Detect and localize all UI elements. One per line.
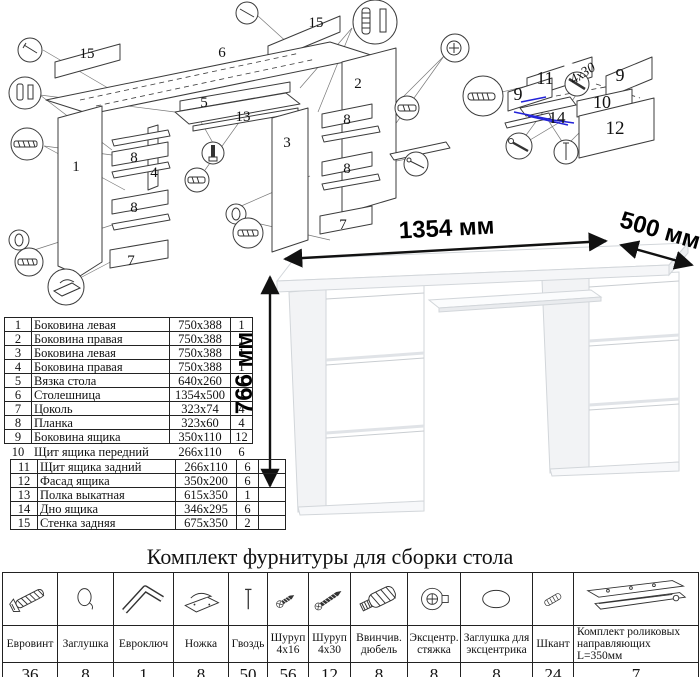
part-qty: 6: [237, 474, 259, 488]
part-number-label: 14: [549, 108, 567, 127]
part-number: 8: [5, 416, 32, 430]
part-name: Планка: [32, 416, 170, 430]
parts-table-row: 9Боковина ящика350x11012: [5, 430, 253, 444]
part-qty: 4: [231, 416, 253, 430]
part-name: Боковина правая: [32, 360, 170, 374]
part-number-label: 12: [606, 118, 625, 139]
parts-table-row: 11Щит ящика задний266x1106: [11, 460, 286, 474]
part-name: Столешница: [32, 388, 170, 402]
part-size: 346x295: [176, 502, 237, 516]
part-number: 11: [11, 460, 38, 474]
cam-cap-icon: [461, 573, 533, 626]
part-qty: 4: [231, 402, 253, 416]
eccentric-callout: [441, 34, 469, 62]
part-size: 266x110: [170, 445, 231, 459]
hardware-item-name: Ввинчив. дюбель: [351, 626, 408, 663]
part-qty: 1: [231, 318, 253, 332]
hardware-item-name: Эксцентр. стяжка: [408, 626, 461, 663]
hexkey-icon: [114, 573, 174, 626]
part-number: 3: [5, 346, 32, 360]
parts-table-row: 14Дно ящика346x2956: [11, 502, 286, 516]
part-number: 14: [11, 502, 38, 516]
part-name: Боковина левая: [32, 318, 170, 332]
part-number-label: 13: [236, 109, 251, 125]
cam-icon: [408, 573, 461, 626]
hardware-item-name: Ножка: [174, 626, 229, 663]
euroscrew-icon: [3, 573, 58, 626]
part-name: Щит ящика передний: [32, 445, 170, 459]
screw-callout: [404, 152, 428, 176]
part-number-label: 2: [354, 76, 362, 92]
part-number-label: 8: [343, 161, 351, 177]
part-number-label: 8: [130, 150, 138, 166]
part-qty: 12: [231, 430, 253, 444]
hardware-kit: ЕвровинтЗаглушкаЕвроключНожкаГвоздьШуруп…: [2, 572, 699, 677]
parts-table-row10: 10Щит ящика передний266x1106: [4, 444, 253, 459]
parts-table-row: 4Боковина правая750x3881: [5, 360, 253, 374]
parts-table-row: 15Стенка задняя675x3502: [11, 516, 286, 530]
hardware-kit-title: Комплект фурнитуры для сборки стола: [0, 544, 660, 570]
part-number-label: 15: [80, 46, 95, 62]
part-name: Фасад ящика: [38, 474, 176, 488]
part-number-label: 1: [72, 159, 80, 175]
nail-callout: [554, 140, 578, 164]
part-number: 7: [5, 402, 32, 416]
part-size: 350x200: [176, 474, 237, 488]
empty-cell: [259, 474, 286, 488]
part-number-label: 5: [200, 95, 208, 111]
part-qty: 6: [237, 502, 259, 516]
euroscrew-callout: [233, 218, 263, 248]
parts-table-row: 13Полка выкатная615x3501: [11, 488, 286, 502]
part-number-label: 9: [514, 84, 523, 104]
part-name: Вязка стола: [32, 374, 170, 388]
part-number: 4: [5, 360, 32, 374]
part-size: 266x110: [176, 460, 237, 474]
part-name: Стенка задняя: [38, 516, 176, 530]
hardware-item-qty: 8: [461, 663, 533, 677]
part-size: 750x388: [170, 318, 231, 332]
part-number-label: 15: [309, 15, 324, 31]
parts-table-row: 3Боковина левая750x3881: [5, 346, 253, 360]
hardware-item-qty: 50: [229, 663, 268, 677]
euroscrew-callout: [463, 76, 503, 116]
part-qty: 6: [231, 445, 253, 459]
empty-cell: [259, 460, 286, 474]
part-size: 640x260: [170, 374, 231, 388]
screw-callout: [506, 133, 532, 159]
part-name: Боковина левая: [32, 346, 170, 360]
hardware-item-name: Заглушка для эксцентрика: [461, 626, 533, 663]
parts-table-block1: 1Боковина левая750x38812Боковина правая7…: [4, 317, 253, 444]
cap-icon: [58, 573, 114, 626]
parts-table-row: 2Боковина правая750x3881: [5, 332, 253, 346]
parts-list: 1Боковина левая750x38812Боковина правая7…: [4, 317, 286, 530]
part-number: 2: [5, 332, 32, 346]
hardware-item-qty: 1: [114, 663, 174, 677]
part-name: Щит ящика задний: [38, 460, 176, 474]
part-name: Полка выкатная: [38, 488, 176, 502]
part-number: 9: [5, 430, 32, 444]
part-name: Боковина правая: [32, 332, 170, 346]
nail-icon: [229, 573, 268, 626]
part-number: 6: [5, 388, 32, 402]
part-size: 750x388: [170, 346, 231, 360]
part-number: 10: [5, 445, 32, 459]
part-number: 12: [11, 474, 38, 488]
euroscrew-callout: [395, 96, 419, 120]
part-size: 750x388: [170, 360, 231, 374]
hardware-item-qty: 8: [351, 663, 408, 677]
euroscrew-callout: [185, 168, 209, 192]
empty-cell: [259, 502, 286, 516]
part-qty: 1: [237, 488, 259, 502]
part-size: 323x74: [170, 402, 231, 416]
empty-cell: [259, 516, 286, 530]
hardware-item-name: Евровинт: [3, 626, 58, 663]
foot-callout: [48, 269, 84, 305]
parts-table-row: 6Столешница1354x5001: [5, 388, 253, 402]
screw-long-icon: [309, 573, 351, 626]
euroscrew-callout: [11, 128, 43, 160]
part-size: 750x388: [170, 332, 231, 346]
hardware-item-name: Заглушка: [58, 626, 114, 663]
hardware-item-qty: 56: [268, 663, 309, 677]
nail-callout: [236, 2, 258, 24]
screw-short-icon: [268, 573, 309, 626]
euroscrew-callout: [15, 248, 43, 276]
desk-render: [277, 243, 688, 515]
part-size: 675x350: [176, 516, 237, 530]
foot-icon: [174, 573, 229, 626]
part-number-label: 7: [339, 217, 347, 233]
parts-table-row: 10Щит ящика передний266x1106: [5, 445, 253, 459]
hardware-item-name: Шуруп 4x30: [309, 626, 351, 663]
part-size: 350x110: [170, 430, 231, 444]
part-qty: 1: [231, 388, 253, 402]
part-qty: 1: [231, 374, 253, 388]
parts-table-block2: 11Щит ящика задний266x110612Фасад ящика3…: [10, 459, 286, 530]
parts-table-row: 8Планка323x604: [5, 416, 253, 430]
part-qty: 1: [231, 332, 253, 346]
parts-table-row: 7Цоколь323x744: [5, 402, 253, 416]
rail-icon: [574, 573, 699, 626]
part-number: 5: [5, 374, 32, 388]
hardware-item-qty: 12: [309, 663, 351, 677]
hardware-item-name: Евроключ: [114, 626, 174, 663]
hardware-item-qty: 24: [533, 663, 574, 677]
part-size: 615x350: [176, 488, 237, 502]
part-qty: 6: [237, 460, 259, 474]
parts-table-row: 12Фасад ящика350x2006: [11, 474, 286, 488]
part-number-label: 7: [127, 253, 135, 269]
part-number-label: 3: [283, 135, 291, 151]
part-number: 15: [11, 516, 38, 530]
dowel-pair-callout: [9, 77, 41, 109]
part-name: Цоколь: [32, 402, 170, 416]
width-dimension-label: 1354 мм: [398, 213, 495, 245]
parts-table-row: 5Вязка стола640x2601: [5, 374, 253, 388]
hardware-item-name: Гвоздь: [229, 626, 268, 663]
nail-callout: [18, 38, 42, 62]
part-qty: 1: [231, 346, 253, 360]
part-number-label: 6: [218, 45, 226, 61]
hardware-item-name: Шкант: [533, 626, 574, 663]
part-name: Дно ящика: [38, 502, 176, 516]
part-number: 13: [11, 488, 38, 502]
assembly-instruction-page: 156155131848732887: [0, 0, 700, 677]
hardware-item-name: Шуруп 4x16: [268, 626, 309, 663]
hardware-kit-table: ЕвровинтЗаглушкаЕвроключНожкаГвоздьШуруп…: [2, 572, 699, 677]
hardware-item-qty: 36: [3, 663, 58, 677]
part-name: Боковина ящика: [32, 430, 170, 444]
part-number-label: 8: [343, 112, 351, 128]
part-number-label: 11: [536, 68, 553, 88]
dowel-screw-callout: [353, 0, 397, 44]
shkant-icon: [533, 573, 574, 626]
empty-cell: [259, 488, 286, 502]
hardware-item-name: Комплект роликовых направляющих L=350мм: [574, 626, 699, 663]
part-qty: 1: [231, 360, 253, 374]
cap-callout: [9, 230, 29, 250]
part-size: 323x60: [170, 416, 231, 430]
part-number: 1: [5, 318, 32, 332]
part-number-label: 8: [130, 200, 138, 216]
hardware-item-qty: 8: [408, 663, 461, 677]
hardware-item-qty: 8: [58, 663, 114, 677]
parts-table-row: 1Боковина левая750x3881: [5, 318, 253, 332]
hardware-item-qty: 7: [574, 663, 699, 677]
part-qty: 2: [237, 516, 259, 530]
part-number-label: 9: [616, 65, 625, 85]
dowel-icon: [351, 573, 408, 626]
part-size: 1354x500: [170, 388, 231, 402]
bolt-callout: [202, 142, 224, 164]
hardware-item-qty: 8: [174, 663, 229, 677]
part-number-label: 10: [593, 92, 611, 112]
part-number-label: 4: [150, 165, 158, 181]
